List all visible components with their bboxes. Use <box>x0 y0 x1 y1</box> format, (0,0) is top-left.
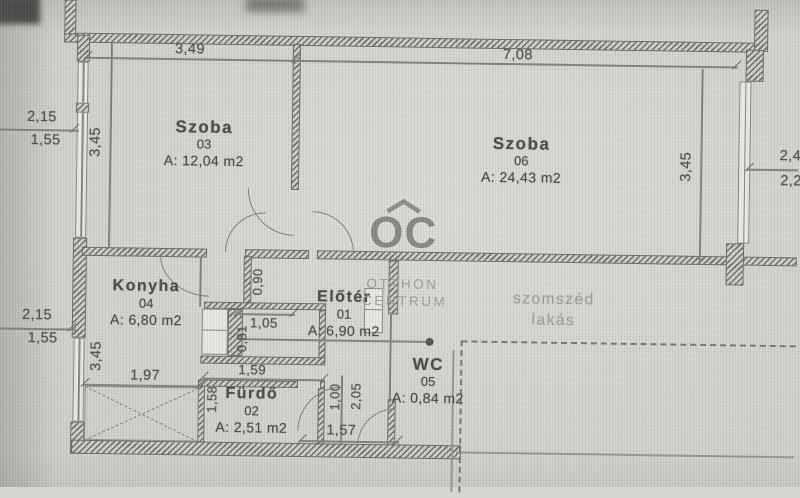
dim-label-right-b: 2,2 <box>769 173 800 190</box>
watermark-otthon-centrum: OC OTTHON CENTRUM <box>362 198 444 310</box>
dim-label-top-szoba03: 3,49 <box>160 41 220 58</box>
dim-label-konyha-width: 1,97 <box>120 367 170 384</box>
dim-label-height-szoba03: 3,45 <box>87 122 104 162</box>
room-area: A: 6,90 m2 <box>299 322 389 340</box>
dim-line-top <box>86 57 738 69</box>
room-number: 04 <box>91 295 201 313</box>
room-area: A: 2,51 m2 <box>202 419 300 437</box>
floor-plan-drawing: 3,49 7,08 2,15 1,55 2,15 1,55 3,45 3,45 … <box>0 0 800 497</box>
neighbor-line-2: lakás <box>496 309 611 332</box>
pantry-duct <box>201 309 228 355</box>
watermark-line-2: CENTRUM <box>362 292 442 310</box>
watermark-line-1: OTTHON <box>362 275 442 293</box>
room-label-szoba-06: Szoba 06 A: 24,43 m2 <box>446 133 597 187</box>
room-area: A: 0,84 m2 <box>382 389 474 407</box>
dim-label-wc-width: 1,57 <box>316 422 366 439</box>
dashed-boundary-horizontal <box>462 340 796 347</box>
dim-line-vertical-left <box>108 42 113 247</box>
room-label-wc: WC 05 A: 0,84 m2 <box>382 354 475 407</box>
room-area: A: 12,04 m2 <box>131 151 276 170</box>
dim-label-furdo-width: 1,59 <box>227 362 277 378</box>
dim-label-left-lower-a: 2,15 <box>12 307 62 324</box>
line-bottom-extension <box>456 451 794 458</box>
dim-line-right <box>746 169 798 172</box>
window-right-szoba06 <box>737 81 751 243</box>
room-area: A: 24,43 m2 <box>446 168 596 187</box>
wall-right-block <box>726 243 745 285</box>
dim-label-eloter-b: 2,05 <box>348 376 364 416</box>
dim-line-vertical-right <box>699 69 704 264</box>
dim-label-pantry-depth: 0,81 <box>234 319 250 359</box>
wall-corner-top-right <box>746 50 764 82</box>
room-number: 05 <box>382 373 474 390</box>
dim-label-left-lower-b: 1,55 <box>18 330 68 347</box>
dim-label-eloter-a: 1,00 <box>327 377 343 417</box>
room-name: Konyha <box>91 276 201 297</box>
door-arc-szoba06 <box>312 211 355 254</box>
room-name: WC <box>382 354 474 374</box>
room-number: 02 <box>202 403 300 420</box>
dim-label-door-width: 0,90 <box>250 262 266 302</box>
room-label-konyha: Konyha 04 A: 6,80 m2 <box>91 276 202 330</box>
dim-label-left-upper-a: 2,15 <box>17 109 67 126</box>
room-name: Szoba <box>132 116 277 137</box>
dim-label-top-szoba06: 7,08 <box>488 47 548 64</box>
leader-dot <box>426 338 434 346</box>
floor-plan-photo: 3,49 7,08 2,15 1,55 2,15 1,55 3,45 3,45 … <box>0 0 800 487</box>
neighbor-line-1: szomszéd <box>496 288 611 311</box>
watermark-logo-text: OC <box>363 213 444 254</box>
wall-stub-top-right <box>754 10 769 52</box>
neighbor-flat-label: szomszéd lakás <box>496 288 612 332</box>
room-label-furdo: Fürdő 02 A: 2,51 m2 <box>202 384 301 437</box>
dim-label-right-a: 2,4 <box>768 148 800 165</box>
room-label-szoba-03: Szoba 03 A: 12,04 m2 <box>131 116 277 170</box>
room-name: Fürdő <box>203 384 301 404</box>
dim-label-height-szoba06: 3,45 <box>678 147 695 187</box>
room-area: A: 6,80 m2 <box>91 311 201 330</box>
wall-between-szoba03-szoba06 <box>291 44 301 190</box>
wall-stub-top-left <box>64 0 77 35</box>
wall-bottom <box>71 440 461 460</box>
window-left-upper <box>77 62 89 104</box>
window-left-konyha <box>72 338 84 422</box>
room-name: Szoba <box>446 133 596 154</box>
door-arc-szoba03-b <box>225 212 266 253</box>
dim-label-height-konyha: 3,45 <box>88 336 105 376</box>
dim-label-left-upper-b: 1,55 <box>20 132 70 149</box>
